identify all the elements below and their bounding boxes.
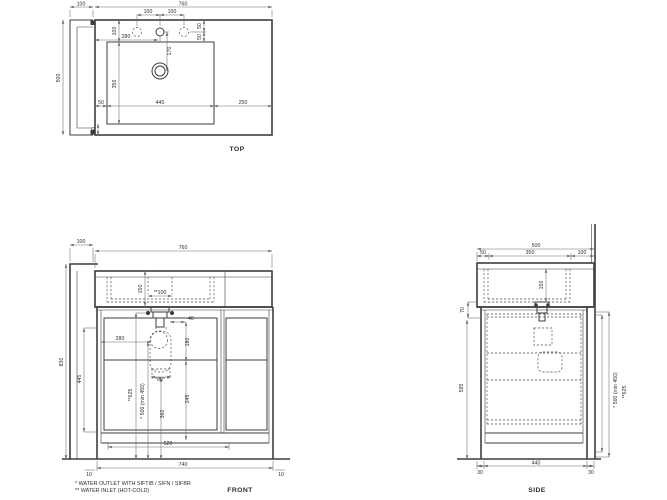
dim-top-hole-edge-a: 50 [197, 23, 203, 29]
front-view: 100 760 150 **100 40 280 180 80 245 360 … [59, 239, 290, 494]
dim-top-deck-to-holes: 100 [112, 27, 118, 36]
inlet-bolt-left [146, 311, 150, 315]
dim-front-plinth-width: 520 [164, 441, 173, 447]
dim-side-basin-height: 150 [539, 281, 545, 290]
dim-front-inlet-height: **625 [128, 389, 134, 402]
note-water-outlet: * WATER OUTLET WITH SIFTIB / SIFN / SIFB… [75, 481, 191, 487]
dim-front-drain-height: 360 [160, 410, 166, 419]
faucet-holes [133, 28, 189, 37]
dim-front-panel-width: 100 [77, 239, 86, 245]
faucet-hole-right [180, 28, 189, 37]
side-hidden-interior [487, 314, 581, 424]
side-drain-assembly [534, 302, 550, 321]
side-countertop [477, 263, 594, 307]
dim-front-trap-width: 80 [157, 377, 163, 383]
dim-front-trap-from-left: 280 [116, 336, 125, 342]
dim-side-front-overhang: 50 [480, 250, 486, 256]
dim-front-interior-height: 445 [77, 375, 83, 384]
front-door-right [226, 318, 267, 430]
dim-side-inlet-height: **625 [622, 386, 628, 399]
dim-front-trap-height: 180 [185, 338, 191, 347]
side-view: 500 50 350 100 150 70 595 * 500 (min 450… [457, 224, 628, 494]
dim-side-back-span: 100 [578, 250, 587, 256]
dim-front-foot-left: 10 [86, 472, 92, 478]
dim-front-total-height: 830 [59, 358, 65, 367]
dim-side-cabinet-height: 595 [459, 384, 465, 393]
dim-top-hole-pitch-left: 100 [144, 9, 153, 15]
dim-top-total-depth: 500 [56, 74, 62, 83]
dim-side-outlet-height: * 500 (min 450) [613, 372, 619, 408]
dim-side-foot-front: 30 [477, 470, 483, 476]
front-view-label: FRONT [227, 487, 253, 494]
drain-outlet [152, 63, 168, 79]
technical-drawing-sheet: 100 760 500 100 100 50 50 100 280 170 35… [0, 0, 667, 500]
dim-top-holes-from-left: 280 [122, 34, 131, 40]
dim-side-total-depth: 500 [532, 243, 541, 249]
front-cabinet [95, 307, 273, 459]
faucet-hole-left [133, 28, 142, 37]
dim-top-hole-edge-b: 50 [197, 34, 203, 40]
dim-front-outlet-height: * 500 (min 450) [140, 383, 146, 419]
note-water-inlet: ** WATER INLET (HOT-COLD) [75, 488, 149, 494]
dim-top-deck-right: 250 [239, 100, 248, 106]
dim-top-panel-width: 100 [77, 2, 86, 8]
dim-front-inlet-pitch: **100 [154, 290, 167, 296]
top-view: 100 760 500 100 100 50 50 100 280 170 35… [56, 2, 272, 154]
dim-front-cabinet-width: 740 [179, 462, 188, 468]
dim-top-basin-gap-bottom: 50 [91, 127, 97, 133]
dim-top-basin-depth: 350 [112, 80, 118, 89]
dim-top-basin-gap-left: 50 [98, 100, 104, 106]
basin-outline [107, 42, 214, 124]
side-view-label: SIDE [528, 487, 546, 494]
dim-front-outlet-drop: 245 [185, 395, 191, 404]
dim-front-top-width: 760 [179, 245, 188, 251]
side-cabinet [477, 307, 594, 459]
towel-bar-panel [70, 20, 95, 135]
inlet-bolt-right [170, 311, 174, 315]
dim-front-drain-offset: 40 [188, 316, 194, 322]
dim-top-hole-pitch-right: 100 [168, 9, 177, 15]
dim-side-foot-back: 30 [588, 470, 594, 476]
vanity-technical-drawing: 100 760 500 100 100 50 50 100 280 170 35… [0, 0, 667, 500]
dim-side-apron-gap: 70 [460, 307, 466, 313]
front-dimension-lines [66, 245, 285, 471]
dim-top-holes-to-drain: 170 [167, 47, 173, 56]
footnotes: * WATER OUTLET WITH SIFTIB / SIFN / SIFB… [75, 481, 191, 494]
front-countertop [95, 271, 272, 307]
dim-front-foot-right: 10 [278, 472, 284, 478]
top-view-label: TOP [229, 146, 244, 153]
dim-side-base-depth: 440 [532, 461, 541, 467]
dim-top-basin-width: 440 [156, 100, 165, 106]
faucet-hole-center [156, 28, 164, 36]
dim-top-total-width: 760 [179, 2, 188, 8]
front-siphon-trap [150, 327, 171, 378]
side-back-panel [592, 224, 596, 459]
dim-front-basin-height: 150 [138, 285, 144, 294]
dim-side-basin-span: 350 [526, 250, 535, 256]
